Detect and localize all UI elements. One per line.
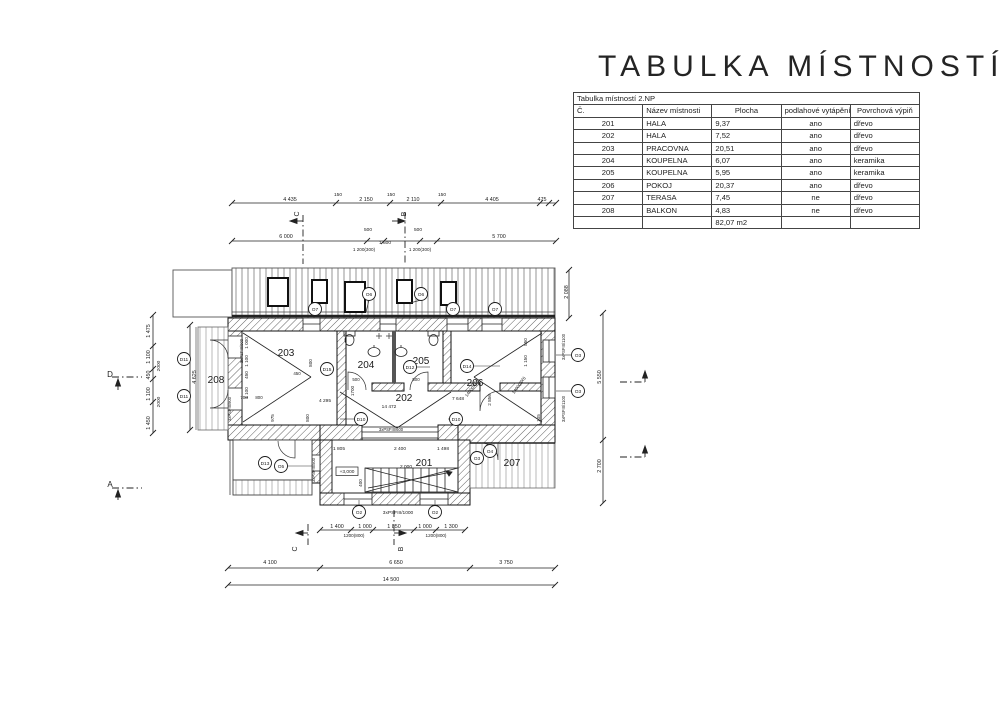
railing-band [233, 480, 312, 495]
ref-circle: D13 [259, 457, 272, 470]
dim-label: 1 450 [146, 416, 152, 430]
roof-window-icon [312, 280, 327, 303]
ref-circle-label: D12 [406, 365, 415, 371]
dim-label: B [401, 211, 408, 216]
ref-circle-label: D11 [180, 394, 189, 400]
dim-label: 1700 [350, 385, 355, 396]
dim-label: 450 [244, 371, 249, 379]
dim-label: 500 [414, 227, 422, 233]
ref-circle: D11 [178, 390, 191, 403]
ref-circle: O3 [572, 349, 585, 362]
dim-label: 2 110 [406, 197, 419, 203]
ref-circle: O6 [363, 288, 376, 301]
dim-label: D [107, 370, 113, 379]
dim-label: 1200(800) [344, 533, 365, 538]
ref-circle: O7 [489, 303, 502, 316]
dim-label: 1 000 [418, 524, 432, 530]
dim-label: C [294, 211, 301, 216]
ref-circle-label: O7 [492, 307, 499, 313]
floor-plan-drawing: 4 4351502 1501502 1101504 4054756 000500… [0, 0, 1000, 708]
dim-label: +3,000 [340, 469, 355, 475]
dim-label: 1 100 [146, 387, 152, 401]
ref-circle-label: D10 [357, 417, 366, 423]
dim-label: 1 850 [387, 524, 401, 530]
dim-label: B [398, 546, 405, 551]
dim-label: 500 [364, 227, 372, 233]
ref-circle-label: O3 [575, 353, 582, 359]
ref-circle: D12 [404, 361, 417, 374]
room-number-label: 202 [396, 393, 413, 404]
dim-label: 7 648 [452, 396, 464, 402]
roof-window-icon [441, 282, 456, 305]
dim-label: 1 000 [358, 524, 372, 530]
dim-label: 14 500 [383, 577, 400, 583]
dim-label: 400 [358, 479, 363, 487]
dim-label: 1 105 [536, 414, 541, 426]
ref-circle: D10 [450, 413, 463, 426]
dim-label: 1 300 [444, 524, 458, 530]
ref-circle-label: O7 [312, 307, 319, 313]
dim-label: 800 [305, 414, 310, 422]
dim-label: 800 [308, 359, 313, 367]
dim-label: 1 400 [330, 524, 344, 530]
dim-label: 6 000 [279, 234, 293, 240]
sink-icon [368, 345, 380, 357]
dim-label: 3xPSFIII/500 [311, 457, 316, 482]
ref-circle-label: D10 [452, 417, 461, 423]
ref-circle: O7 [309, 303, 322, 316]
ref-circle: O7 [447, 303, 460, 316]
covered-area [233, 440, 312, 480]
dim-label: 1 000 [244, 337, 249, 349]
dim-label: 3xPSFIII/1000 [383, 510, 414, 516]
ref-circle: O3 [471, 452, 484, 465]
dim-label: 150 [387, 192, 395, 198]
dim-label: 500 [412, 377, 420, 382]
ref-circle: O4 [484, 445, 497, 458]
ref-circle: O2 [429, 506, 442, 519]
roof-window-icon [345, 282, 365, 312]
dim-label: 1200(800) [426, 533, 447, 538]
dim-label: 1 498 [437, 446, 449, 452]
room-number-label: 208 [208, 375, 225, 386]
ref-circle-label: O7 [450, 307, 457, 313]
toilet-icon [428, 331, 439, 346]
dim-label: 2 400 [394, 446, 406, 452]
dim-label: 3xPSFIII/1100 [561, 395, 566, 422]
roof-left-panel [173, 270, 232, 317]
dim-label: 1 150 [523, 355, 528, 367]
sink-icon [395, 345, 407, 357]
ref-circle: D10 [355, 413, 368, 426]
dim-label: 4 435 [283, 197, 297, 203]
dim-label: 975 [270, 414, 275, 422]
ref-circle-label: D13 [261, 461, 270, 467]
ref-circle: O6 [415, 288, 428, 301]
dim-label: 1 805 [333, 446, 345, 452]
dim-label: 2 856 [487, 394, 492, 406]
dim-label: 3 750 [499, 560, 513, 566]
dim-label: 2 088 [564, 285, 570, 299]
ref-circle: D15 [321, 363, 334, 376]
faucet-cross-icon [376, 333, 392, 339]
dim-label: 3xPSFIII/1100 [561, 333, 566, 360]
dim-label: 500 [352, 377, 360, 382]
dim-label: 150 [438, 192, 446, 198]
dim-label: 6 650 [389, 560, 403, 566]
dim-label: 2000 [156, 360, 162, 371]
dim-label: A [107, 480, 113, 489]
ref-circle-label: O6 [366, 292, 373, 298]
dim-label: 1 100 [244, 355, 249, 367]
dim-label: 1 100 [146, 350, 152, 364]
dim-label: 2 000 [400, 464, 412, 470]
dim-label: 3xPSFIII/600 [379, 427, 404, 432]
dim-label: 3xPSFIII/900 [239, 338, 244, 363]
dim-label: 5 550 [597, 370, 603, 384]
dim-label: 1 475 [146, 324, 152, 338]
dim-label: 475 [538, 197, 547, 203]
dim-label: 1 200(300) [409, 247, 432, 252]
ref-circle: D11 [178, 353, 191, 366]
room-number-label: 201 [416, 458, 433, 469]
ref-circle-label: O3 [575, 389, 582, 395]
ref-circle-label: D15 [323, 367, 332, 373]
ref-circle: O3 [572, 385, 585, 398]
dim-label: 4 405 [485, 197, 499, 203]
dim-label: 1 200(300) [353, 247, 376, 252]
roof-window-icon [268, 278, 288, 306]
ref-circle-label: D11 [180, 357, 189, 363]
dim-label: 3xPSFIII/900 [227, 396, 232, 421]
dim-label: 4 295 [319, 398, 331, 404]
dim-label: 708 [240, 395, 248, 400]
dim-label: 2 150 [359, 197, 373, 203]
dim-label: 2 700 [597, 459, 603, 473]
ref-circle: D14 [461, 360, 474, 373]
ref-circle-label: D14 [463, 364, 472, 370]
dim-label: 1 600 [379, 240, 391, 246]
dim-label: 450 [146, 371, 152, 380]
ref-circle-label: O4 [487, 449, 494, 455]
ref-circle: O5 [275, 460, 288, 473]
dim-label: 800 [255, 395, 263, 400]
ref-circle-label: O6 [418, 292, 425, 298]
dim-label: 850 [523, 338, 528, 346]
scanned-floor-plan-page: { "title": "TABULKA MÍSTNOSTÍ", "table":… [0, 0, 1000, 708]
room-number-label: 204 [358, 360, 375, 371]
room-number-label: 206 [467, 378, 484, 389]
room-number-label: 207 [504, 458, 521, 469]
dim-label: 2000 [156, 396, 162, 407]
ref-circle-label: O2 [356, 510, 363, 516]
dim-label: 150 [334, 192, 342, 198]
room-number-label: 203 [278, 348, 295, 359]
ref-circle: O2 [353, 506, 366, 519]
dim-label: 4 625 [192, 370, 198, 384]
dim-label: 5 700 [492, 234, 506, 240]
ref-circle-label: O5 [278, 464, 285, 470]
roof-window-icon [397, 280, 412, 303]
dim-label: C [292, 546, 299, 551]
dim-label: 4 100 [263, 560, 277, 566]
dim-label: 450 [293, 371, 301, 376]
dim-label: 14 472 [382, 404, 397, 410]
ref-circle-label: O3 [474, 456, 481, 462]
ref-circle-label: O2 [432, 510, 439, 516]
